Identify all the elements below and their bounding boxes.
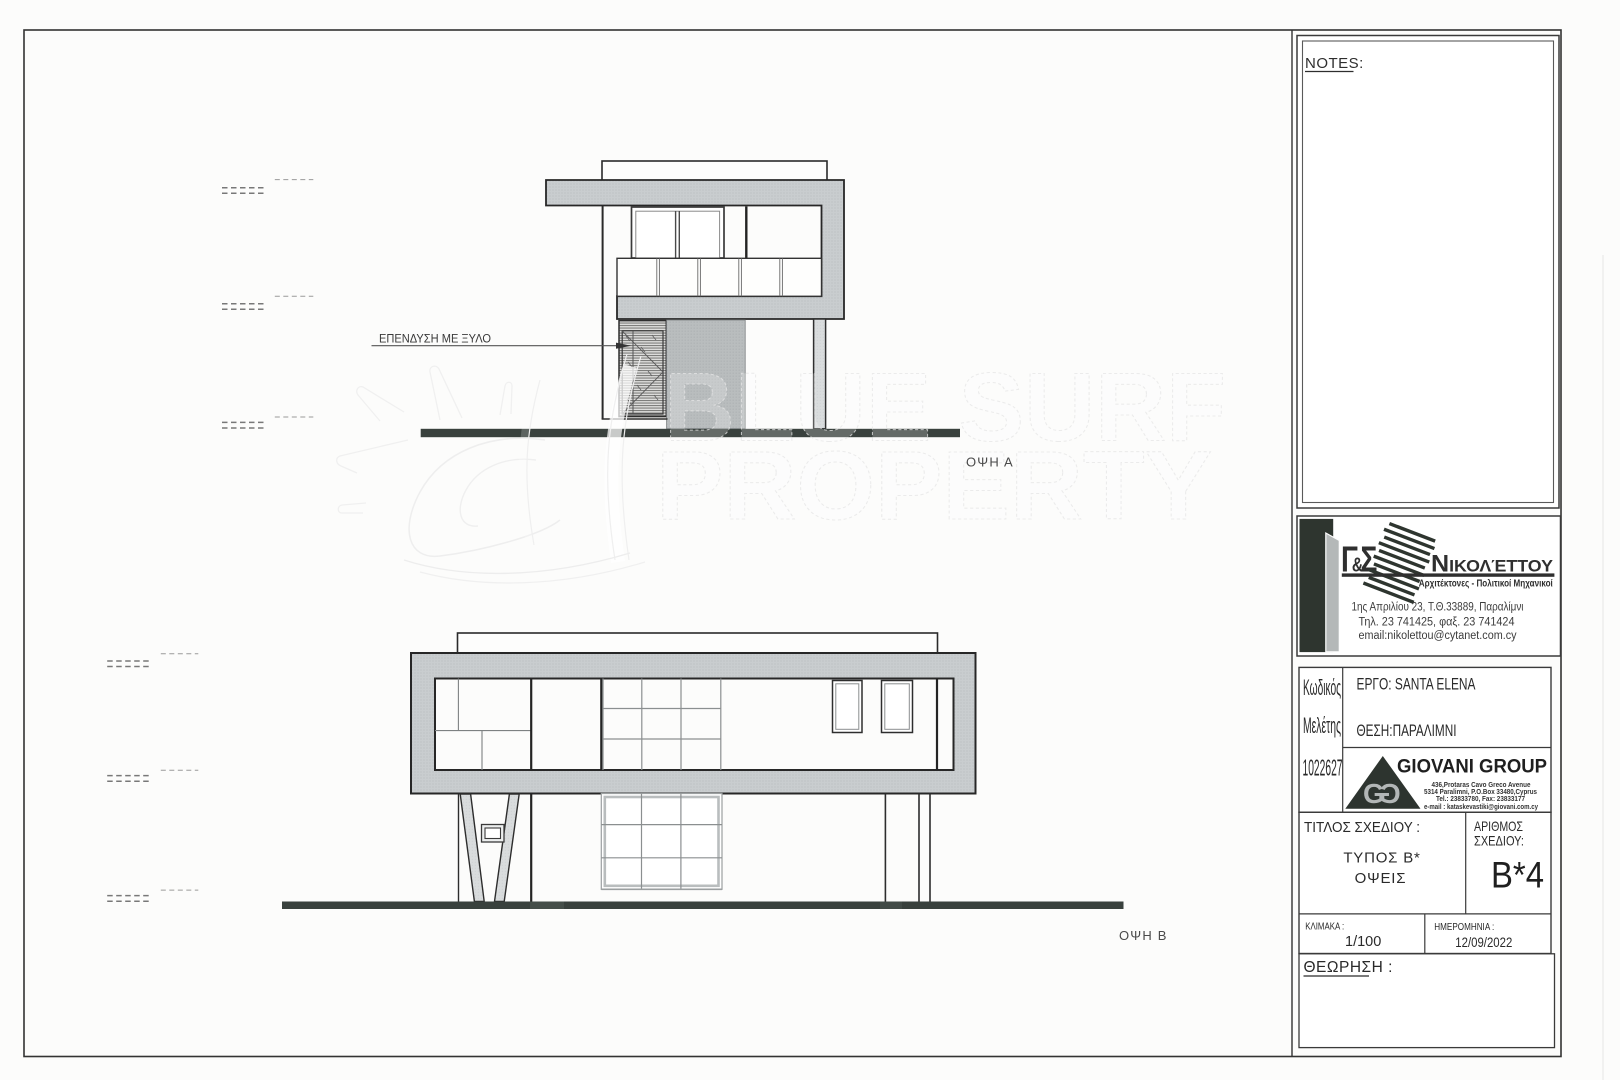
svg-text:ΟΨΗ Β: ΟΨΗ Β	[1119, 928, 1168, 943]
svg-text:ΤΥΠΟΣ Β*: ΤΥΠΟΣ Β*	[1343, 850, 1420, 867]
svg-text:1ης Απριλίου 23, Τ.Θ.33889, Πα: 1ης Απριλίου 23, Τ.Θ.33889, Παραλίμνι	[1352, 602, 1524, 614]
svg-text:G: G	[1379, 778, 1401, 809]
svg-text:ΟΨΗ Α: ΟΨΗ Α	[966, 455, 1014, 470]
svg-text:NOTES:: NOTES:	[1305, 55, 1364, 72]
svg-text:ΑΡΙΘΜΟΣ: ΑΡΙΘΜΟΣ	[1474, 818, 1523, 834]
svg-text:1/100: 1/100	[1345, 934, 1381, 950]
svg-text:ΕΠΕΝΔΥΣΗ ΜΕ ΞΥΛΟ: ΕΠΕΝΔΥΣΗ ΜΕ ΞΥΛΟ	[379, 334, 491, 346]
svg-text:Μελέτης: Μελέτης	[1303, 713, 1341, 738]
svg-text:Κωδικός: Κωδικός	[1303, 675, 1341, 700]
svg-text:PROPERTY: PROPERTY	[656, 431, 1212, 540]
svg-text:GIOVANI GROUP: GIOVANI GROUP	[1397, 757, 1547, 778]
svg-text:ΚΛΙΜΑΚΑ :: ΚΛΙΜΑΚΑ :	[1305, 922, 1344, 933]
svg-text:Τηλ. 23 741425, φαξ. 23 741424: Τηλ. 23 741425, φαξ. 23 741424	[1359, 617, 1516, 629]
svg-text:e-mail : kataskevastiki@giovan: e-mail : kataskevastiki@giovani.com.cy	[1424, 802, 1539, 811]
svg-text:ΘΕΣΗ:ΠΑΡΑΛΙΜΝΙ: ΘΕΣΗ:ΠΑΡΑΛΙΜΝΙ	[1357, 722, 1457, 740]
svg-text:B*4: B*4	[1491, 855, 1544, 896]
svg-text:ΕΡΓΟ: SANTA ELENA: ΕΡΓΟ: SANTA ELENA	[1357, 675, 1476, 694]
svg-text:ΤΙΤΛΟΣ ΣΧΕΔΙΟΥ :: ΤΙΤΛΟΣ ΣΧΕΔΙΟΥ :	[1304, 820, 1420, 836]
svg-text:ΣΧΕΔΙΟΥ:: ΣΧΕΔΙΟΥ:	[1474, 833, 1524, 849]
svg-text:1022627: 1022627	[1303, 755, 1343, 781]
svg-text:Αρχιτέκτονες - Πολιτικοί Μηχαν: Αρχιτέκτονες - Πολιτικοί Μηχανικοί	[1419, 579, 1553, 590]
svg-text:ΟΨΕΙΣ: ΟΨΕΙΣ	[1355, 870, 1407, 887]
svg-text:ΗΜΕΡΟΜΗΝΙΑ :: ΗΜΕΡΟΜΗΝΙΑ :	[1434, 921, 1494, 933]
svg-text:email:nikolettou@cytanet.com.c: email:nikolettou@cytanet.com.cy	[1359, 630, 1517, 642]
svg-text:ΘΕΩΡΗΣΗ :: ΘΕΩΡΗΣΗ :	[1304, 959, 1393, 976]
svg-text:12/09/2022: 12/09/2022	[1455, 934, 1512, 950]
